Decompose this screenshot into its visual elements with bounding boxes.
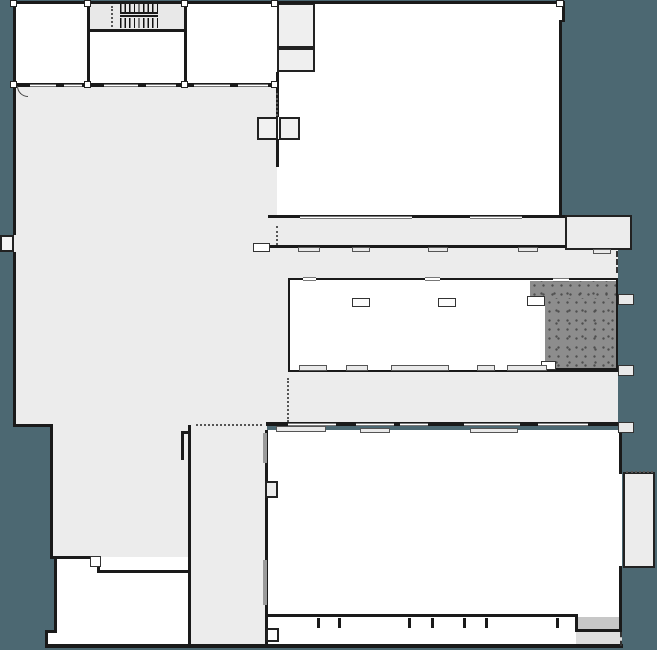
d2-room	[565, 215, 632, 250]
band-e-fill	[268, 248, 618, 278]
wall-c-left-2	[276, 139, 279, 167]
sill-f5	[507, 365, 547, 371]
corrv-notch	[265, 481, 278, 498]
sill-g2	[360, 428, 390, 433]
corrv-gray2	[263, 560, 267, 605]
dashed-bottom-right	[620, 632, 622, 646]
sill-d3	[428, 247, 448, 252]
column-t4	[271, 0, 278, 7]
win-d-top1	[300, 216, 412, 220]
stair-landing-bar2	[120, 15, 158, 17]
wall-k-right-bot	[619, 566, 622, 617]
f-col1	[352, 298, 370, 307]
stub-r3	[618, 422, 634, 433]
floor-plan	[0, 0, 657, 650]
sill-d1	[298, 247, 320, 252]
bumpout-room	[623, 472, 655, 568]
f-open-top2	[425, 277, 440, 281]
wall-step-h	[13, 424, 52, 427]
column-m2	[84, 81, 91, 88]
win-d-top2	[470, 216, 522, 220]
column-m4	[271, 81, 278, 88]
wall-left-upper	[13, 1, 16, 235]
mullion-5	[463, 618, 466, 628]
wall-c-right	[559, 20, 562, 218]
k-bottom-strip	[267, 617, 622, 645]
mullion-2	[338, 618, 341, 628]
strip-ef-fill	[268, 278, 290, 372]
stair-treads-lower	[120, 18, 158, 28]
sill-g1	[276, 426, 326, 432]
dotted-elevator	[276, 93, 278, 116]
elevator-shaft-2	[279, 117, 300, 140]
win-a2	[64, 84, 82, 88]
wall-k-right-top	[619, 432, 622, 474]
corrv-tick-v	[181, 431, 184, 460]
sill-g3	[470, 428, 518, 433]
win-g3	[400, 423, 428, 427]
wall-recess-right	[619, 617, 622, 632]
column-t5	[556, 0, 564, 7]
bl-door-square	[90, 556, 101, 567]
room-b2	[277, 48, 315, 72]
win-a1	[30, 84, 56, 88]
column-m3	[181, 81, 188, 88]
k-bottom-box	[266, 628, 279, 642]
stipple-open-left	[527, 296, 545, 306]
band-g-fill	[268, 372, 618, 425]
dashed-e-right	[616, 251, 618, 273]
mullion-1	[317, 618, 320, 628]
dotted-band-g	[287, 378, 289, 422]
wall-stair-bottom	[88, 29, 186, 32]
wall-a-v2	[184, 3, 187, 83]
dotted-corridor-top	[196, 424, 262, 426]
column-t1	[10, 0, 17, 7]
dotted-stair	[111, 6, 113, 27]
f-open-top1	[303, 277, 316, 281]
win-a5	[194, 84, 230, 88]
wall-left-mid	[13, 252, 16, 426]
elevator-shaft-1	[257, 117, 278, 140]
column-t2	[84, 0, 91, 7]
stub-r1	[618, 294, 634, 305]
left-tab	[0, 235, 14, 252]
wall-top	[13, 1, 562, 4]
room-c-fill	[277, 3, 562, 218]
column-m1	[10, 81, 17, 88]
mullion-7	[556, 618, 559, 628]
win-g5	[538, 423, 588, 427]
stub-d-left	[253, 243, 270, 252]
sill-f1	[299, 365, 327, 371]
mullion-3	[408, 618, 411, 628]
mullion-4	[431, 618, 434, 628]
room-b1	[277, 3, 315, 48]
wall-bl-step-h	[97, 570, 190, 573]
win-g4	[464, 423, 520, 427]
dotted-band-d	[276, 226, 278, 245]
wall-a-v1	[87, 3, 90, 83]
win-a4	[146, 84, 176, 88]
wall-k-bottom	[266, 614, 577, 617]
hall-upper-fill	[13, 85, 277, 425]
sill-d2	[352, 247, 370, 252]
wall-left-lower	[50, 424, 53, 559]
wall-recess-h	[575, 629, 622, 632]
wall-bottom-main	[45, 644, 623, 648]
sill-f4	[477, 365, 495, 371]
wall-bl-left	[54, 557, 57, 633]
column-t3	[181, 0, 188, 7]
sill-f3	[391, 365, 449, 371]
bumpout-top-dotted	[626, 471, 653, 473]
win-a3	[104, 84, 138, 88]
room-k-fill	[267, 430, 622, 617]
mullion-6	[485, 618, 488, 628]
sill-f2	[346, 365, 368, 371]
hall-lower-fill	[50, 425, 190, 558]
f-col2	[438, 298, 456, 307]
vertical-corridor-fill	[190, 425, 267, 648]
corrv-gray1	[263, 433, 267, 463]
f-open-top3	[553, 278, 569, 282]
win-g2	[356, 423, 394, 427]
sill-d5	[593, 249, 611, 254]
stub-r2	[618, 365, 634, 376]
band-d-fill	[268, 218, 565, 248]
wall-corrv-left	[188, 425, 191, 646]
stair-treads-upper	[120, 4, 158, 12]
stair-landing-bar1	[120, 12, 158, 14]
sill-d4	[518, 247, 538, 252]
win-a6	[238, 84, 268, 88]
stipple-main	[545, 298, 616, 369]
